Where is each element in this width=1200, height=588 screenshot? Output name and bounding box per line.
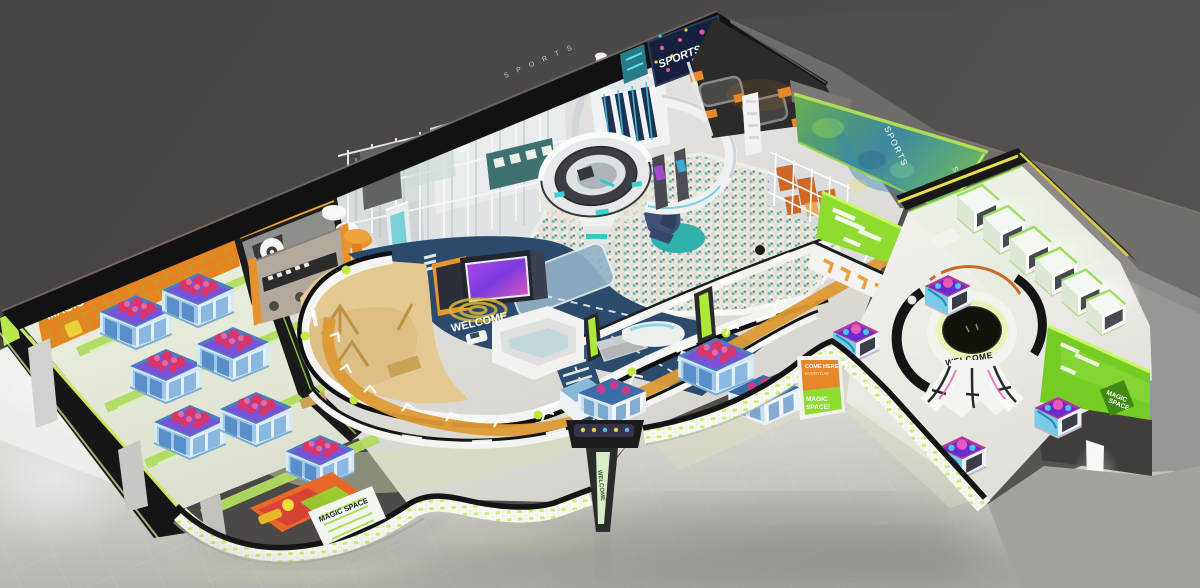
svg-text:EVERYDAY: EVERYDAY — [805, 371, 829, 376]
svg-text:MAGIC: MAGIC — [806, 396, 828, 403]
svg-text:SPACE!: SPACE! — [806, 404, 830, 411]
svg-text:COME HERE: COME HERE — [805, 364, 839, 370]
